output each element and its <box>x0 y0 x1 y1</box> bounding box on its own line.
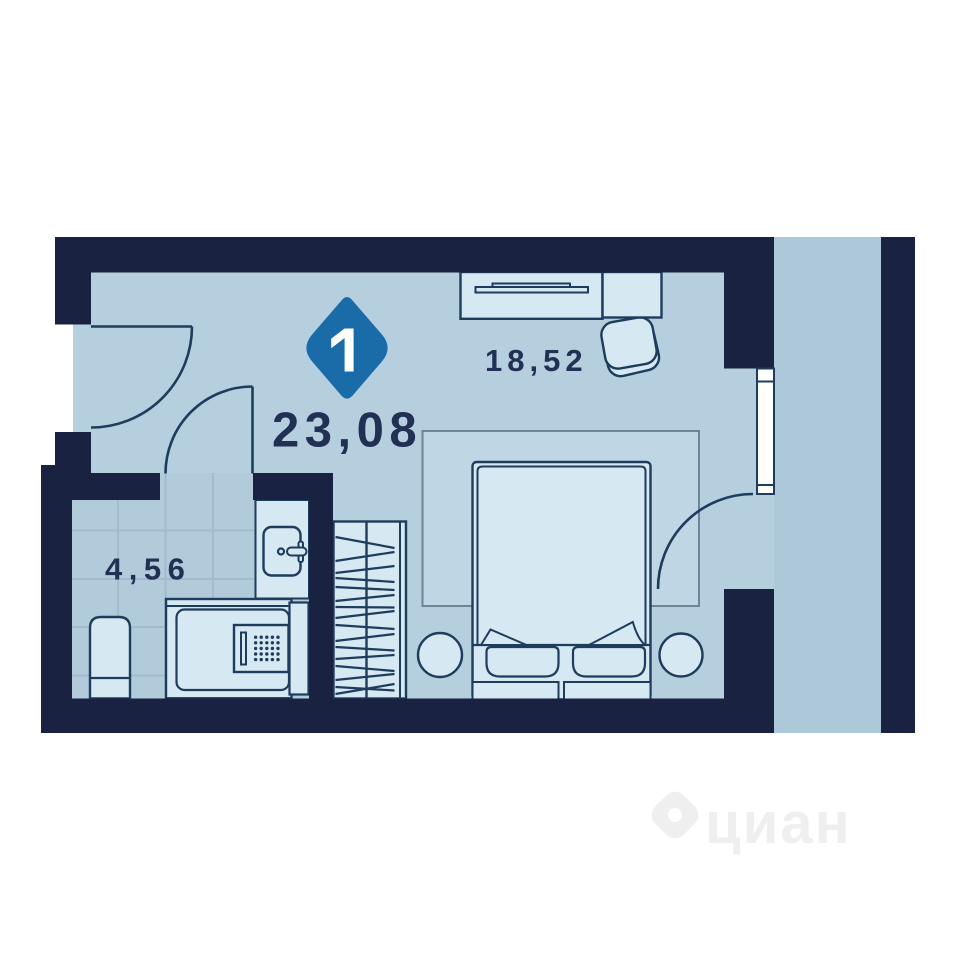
svg-text:18,52: 18,52 <box>485 343 588 378</box>
svg-text:4,56: 4,56 <box>105 552 191 587</box>
svg-text:23,08: 23,08 <box>272 404 422 458</box>
svg-text:циан: циан <box>705 791 852 856</box>
